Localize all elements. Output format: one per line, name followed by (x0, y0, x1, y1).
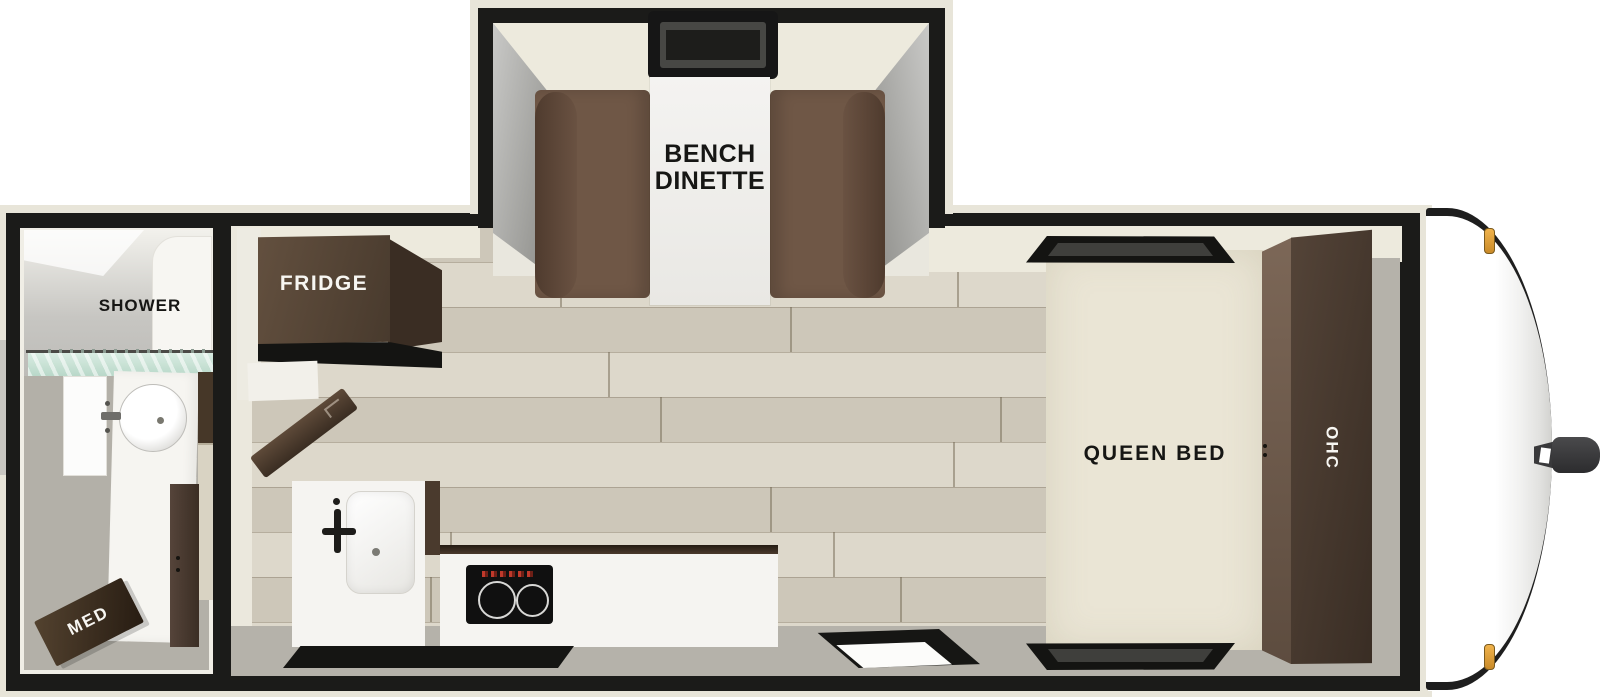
ohc-cabinet: OHC (1291, 228, 1372, 664)
bed-foot-window-glass (1048, 649, 1213, 662)
dinette-bench-right-armrest (843, 92, 885, 298)
kitchen-nook-counter (247, 361, 318, 401)
cooktop (466, 565, 553, 624)
bathroom-linen-cabinet (170, 484, 199, 647)
bathroom-shelves (198, 443, 213, 600)
kitchen-sink (346, 491, 415, 594)
plank-joint (770, 487, 772, 532)
vanity-sink-bowl (119, 384, 187, 452)
hitch-notch (1539, 447, 1551, 463)
bed-head-window-glass (1048, 243, 1213, 256)
counter-edge-vertical (425, 481, 440, 555)
ohc-handle (1263, 444, 1267, 448)
plank-joint (608, 352, 610, 397)
cooktop-burner-right (516, 584, 549, 617)
wall-face-top-mid (927, 226, 1047, 272)
plank-joint (953, 442, 955, 487)
marker-light-top (1484, 228, 1495, 254)
bathroom-cabinet-upper (198, 372, 213, 443)
slideout-trim-right (945, 8, 953, 214)
vanity-faucet-handle-top (105, 401, 110, 406)
plank-joint (1000, 397, 1002, 442)
cooktop-controls (482, 571, 534, 577)
queen-bed: QUEEN BED (1046, 250, 1264, 650)
wall-left (6, 213, 20, 691)
marker-light-bottom (1484, 644, 1495, 670)
plank-joint (790, 307, 792, 352)
fridge-label: FRIDGE (258, 272, 390, 296)
front-wall-face (1372, 258, 1400, 676)
slideout-trim-top (470, 0, 953, 8)
plank-joint (660, 397, 662, 442)
counter-edge-horizontal (440, 545, 778, 554)
wall-bathroom-divider (213, 213, 231, 691)
wall-right (1400, 213, 1422, 691)
shower-label: SHOWER (60, 297, 220, 315)
kitchen-faucet-sprayer (333, 498, 340, 505)
fridge: FRIDGE (258, 234, 390, 344)
slideout-window (648, 11, 778, 79)
ohc-side-face (1262, 238, 1291, 664)
linen-cabinet-handle (176, 556, 180, 560)
plank-joint (833, 532, 835, 577)
dinette-bench-left-armrest (535, 92, 577, 298)
kitchen-faucet-handle (322, 528, 356, 535)
entry-door-handle (324, 399, 345, 419)
plank-joint (430, 577, 432, 622)
exterior-trim-bottom (0, 691, 1432, 697)
slideout-window-sash (666, 30, 760, 60)
plank-joint (900, 577, 902, 622)
queen-bed-label: QUEEN BED (1046, 443, 1264, 466)
bathroom-door (63, 376, 107, 476)
slideout-trim-left (470, 8, 478, 214)
dinette-label: BENCH DINETTE (620, 141, 800, 195)
vanity-sink-drain (157, 417, 164, 424)
vanity-faucet-handle-bottom (105, 428, 110, 433)
hitch-coupler (1552, 437, 1600, 473)
kitchen-sink-drain (372, 548, 380, 556)
floorplan-canvas: SHOWER MED BENCH DI (0, 0, 1600, 697)
ohc-label: OHC (1322, 408, 1342, 489)
front-cap (1426, 208, 1552, 690)
vanity-faucet (101, 412, 121, 420)
cooktop-burner-left (478, 581, 516, 619)
kitchen-window (283, 646, 574, 668)
